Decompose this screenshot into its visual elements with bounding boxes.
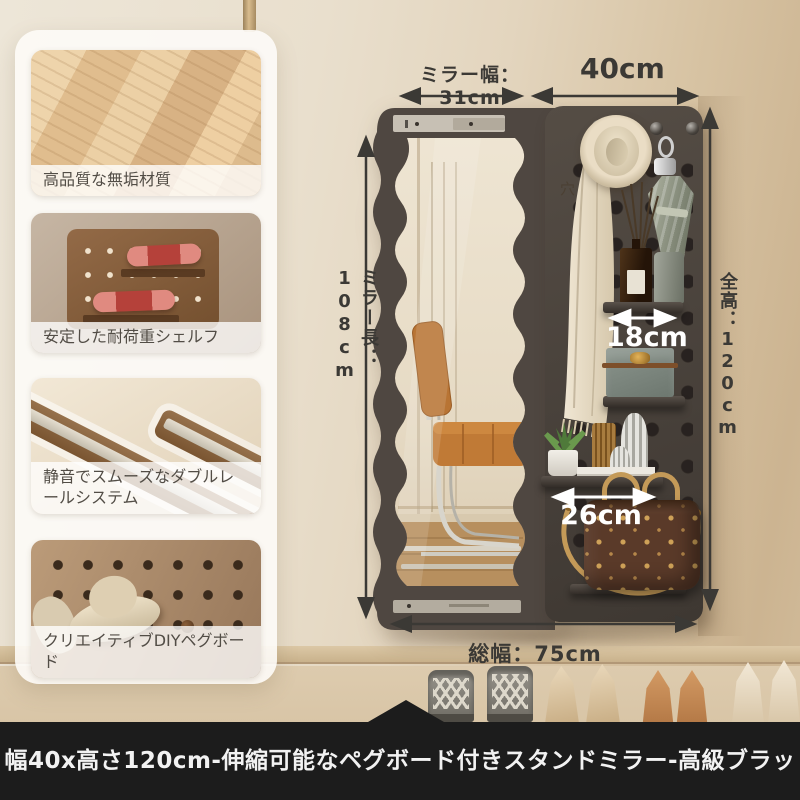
box-clasp bbox=[630, 352, 650, 364]
feature-card: 高品質な無垢材質 安定した耐荷重シェルフ 静音でスムーズなダブルレールシステム bbox=[15, 30, 277, 684]
label-mirror-width: ミラー幅：31cm bbox=[395, 60, 545, 109]
label-mirror-length: ミラー長：108cm bbox=[334, 268, 381, 478]
feature-tile-wood: 高品質な無垢材質 bbox=[31, 50, 261, 196]
banner-title: 幅40x高さ120cm-伸縮可能なペグボード付きスタンドミラー-高級ブラック bbox=[0, 722, 800, 800]
label-board-width: 40cm bbox=[580, 52, 660, 85]
pegboard-shelf-upper bbox=[603, 302, 683, 313]
diffuser-bottle bbox=[620, 248, 652, 304]
plant-pot bbox=[548, 450, 578, 476]
peg-hook bbox=[650, 122, 663, 135]
feature-tile-shelf: 安定した耐荷重シェルフ bbox=[31, 213, 261, 353]
shoe-boot-right bbox=[487, 666, 533, 722]
hat-crease bbox=[606, 138, 628, 166]
label-upper-shelf-width: 18cm bbox=[606, 322, 680, 353]
label-total-width: 総幅：75cm bbox=[455, 638, 615, 668]
wavy-mirror bbox=[365, 102, 555, 634]
picture-frame-edge bbox=[243, 0, 256, 32]
product-banner: 幅40x高さ120cm-伸縮可能なペグボード付きスタンドミラー-高級ブラック bbox=[0, 722, 800, 800]
peg-hook bbox=[686, 122, 699, 135]
dumbbell bbox=[93, 290, 176, 313]
feature-caption: 静音でスムーズなダブルレールシステム bbox=[31, 462, 261, 514]
umbrella-handle bbox=[654, 158, 676, 175]
umbrella-strap-loop bbox=[658, 136, 674, 158]
feature-tile-pegboard: クリエイティブDIYペグボード bbox=[31, 540, 261, 678]
feature-caption: 高品質な無垢材質 bbox=[31, 165, 261, 196]
towel-monogram: 穴 bbox=[560, 180, 575, 198]
reed-sticks bbox=[618, 182, 662, 250]
label-total-height: 全高：120cm bbox=[714, 272, 740, 472]
gray-vase bbox=[654, 252, 684, 303]
feature-caption: 安定した耐荷重シェルフ bbox=[31, 322, 261, 353]
dumbbell bbox=[127, 243, 202, 267]
pegboard-shelf-middle bbox=[603, 396, 685, 407]
label-lower-shelf-width: 26cm bbox=[546, 500, 656, 531]
product-showcase: 穴 bbox=[0, 0, 800, 800]
feature-tile-rail: 静音でスムーズなダブルレールシステム bbox=[31, 378, 261, 514]
feature-caption: クリエイティブDIYペグボード bbox=[31, 626, 261, 678]
